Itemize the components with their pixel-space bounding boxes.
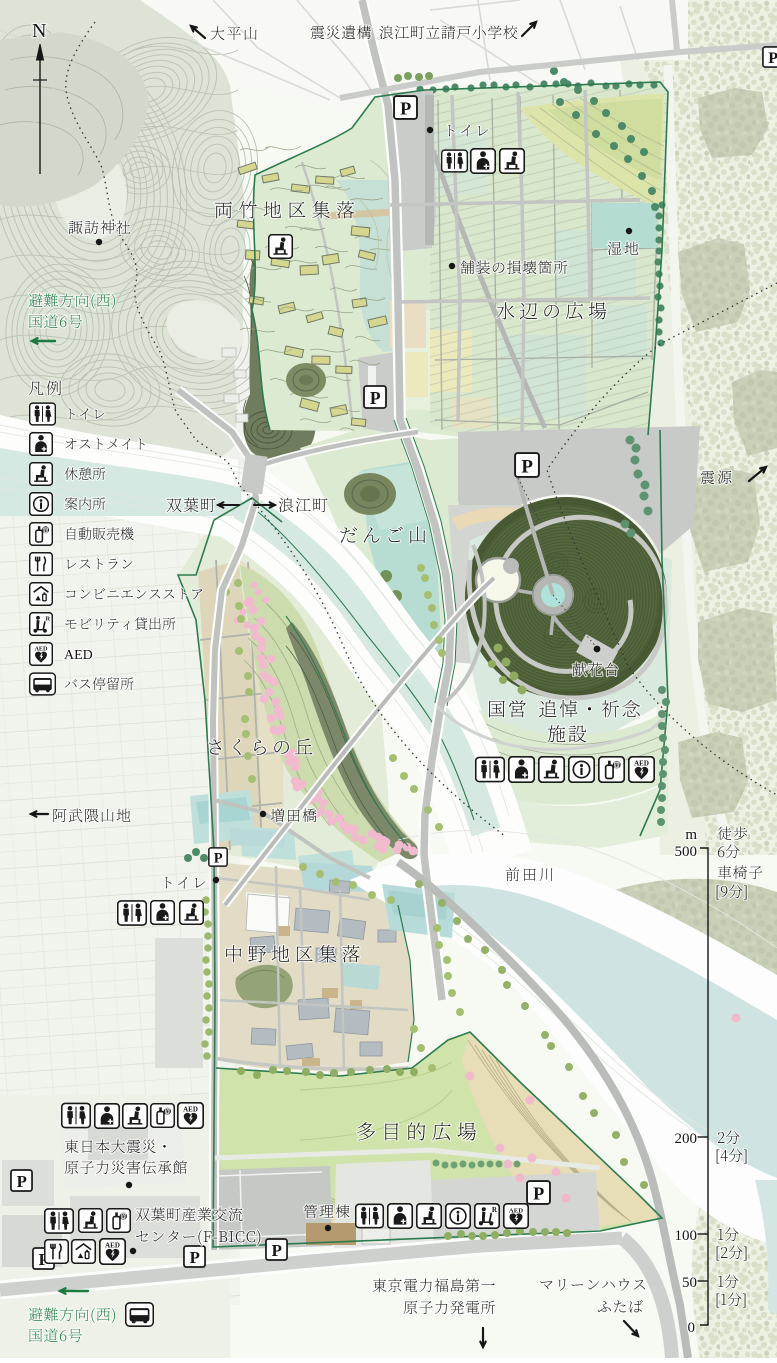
svg-text:AED: AED xyxy=(64,648,93,663)
svg-text:0: 0 xyxy=(688,1320,696,1336)
svg-text:200: 200 xyxy=(675,1131,698,1147)
svg-text:m: m xyxy=(685,827,697,843)
svg-text:500: 500 xyxy=(675,844,698,860)
svg-text:100: 100 xyxy=(675,1228,698,1244)
svg-text:N: N xyxy=(32,20,46,42)
svg-text:50: 50 xyxy=(682,1275,697,1291)
